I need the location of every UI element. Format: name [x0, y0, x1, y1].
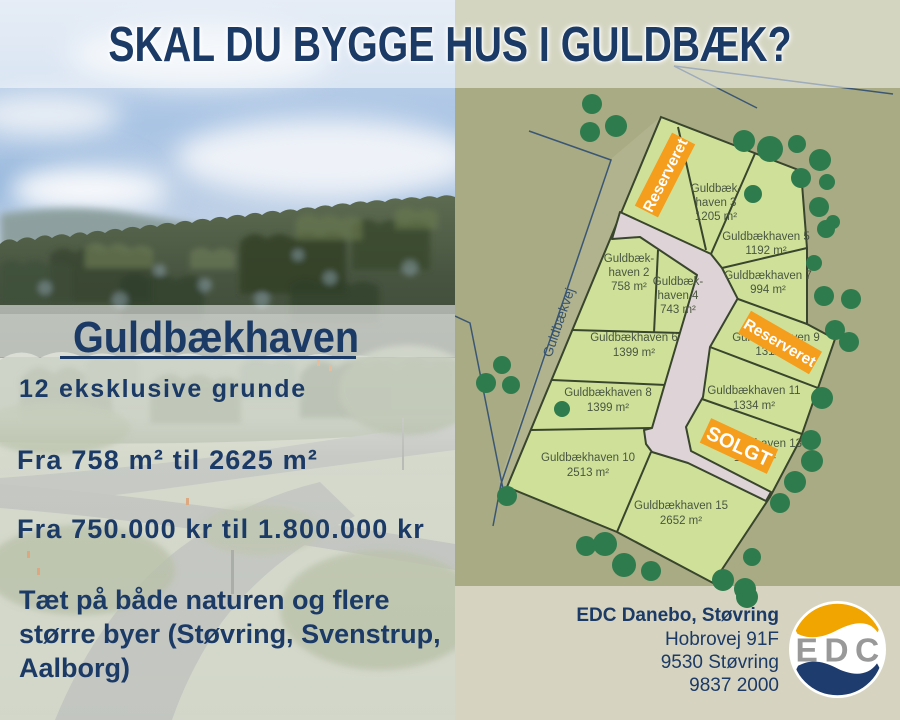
svg-text:Guldbæk-haven 4743 m²: Guldbæk-haven 4743 m² [653, 276, 704, 316]
svg-text:Guldbæk-haven 2758 m²: Guldbæk-haven 2758 m² [604, 253, 655, 293]
svg-text:Guldbæk-haven 31205 m²: Guldbæk-haven 31205 m² [691, 183, 742, 223]
svg-text:EDC: EDC [796, 633, 886, 670]
